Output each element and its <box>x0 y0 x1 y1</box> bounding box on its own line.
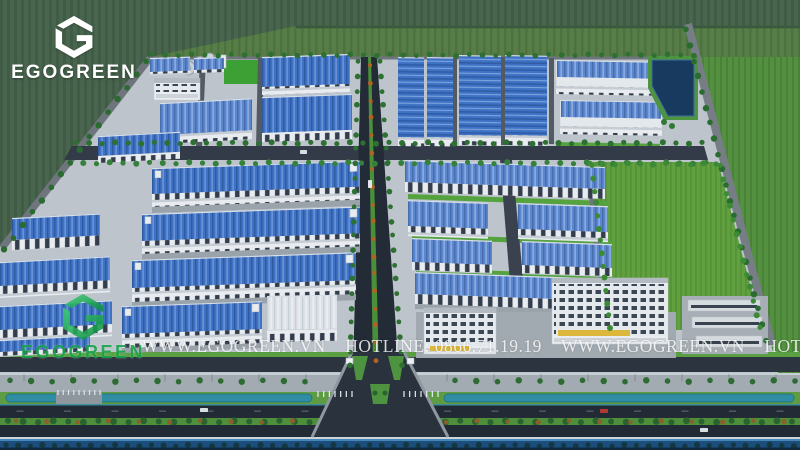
street-lamps <box>493 375 494 382</box>
tree-icon <box>767 442 773 448</box>
tree-icon <box>717 163 722 168</box>
tree-icon <box>86 140 92 146</box>
tree-icon <box>349 306 355 312</box>
tree-icon <box>270 443 275 448</box>
tree-icon <box>569 141 574 146</box>
tree-icon <box>603 288 608 293</box>
tree-icon <box>625 160 631 166</box>
tree-icon <box>3 442 8 447</box>
tree-icon <box>691 53 697 59</box>
tree-icon <box>258 442 264 448</box>
tree-icon <box>39 197 45 203</box>
factory-lr-2b <box>518 203 608 242</box>
side-bridge-railing <box>73 390 74 395</box>
tree-icon <box>587 161 592 166</box>
tree-icon <box>374 53 380 59</box>
tree-icon <box>727 203 733 209</box>
tree-icon <box>77 147 83 153</box>
road-ur-3 <box>549 58 554 144</box>
tree-icon <box>253 161 258 166</box>
tree-icon <box>750 379 756 385</box>
tree-icon <box>416 443 421 448</box>
tree-icon <box>425 159 431 165</box>
factory-roof <box>518 203 608 232</box>
tree-icon <box>306 160 311 165</box>
tree-icon <box>537 378 543 384</box>
tree-icon <box>658 442 663 447</box>
tree-icon <box>593 200 599 206</box>
stair-tower <box>350 209 357 217</box>
street-lamps <box>258 375 259 382</box>
stair-tower <box>155 171 161 178</box>
tree-icon <box>307 419 313 425</box>
tree-icon <box>601 378 607 384</box>
factory-roof <box>408 200 488 229</box>
tree-icon <box>52 443 57 448</box>
tree-icon <box>105 109 111 115</box>
tree-icon <box>39 442 45 448</box>
tree-icon <box>242 52 248 58</box>
tree-icon <box>198 419 202 423</box>
tree-icon <box>222 442 227 447</box>
tree-icon <box>106 418 111 423</box>
factory-ul-f <box>98 132 180 163</box>
tree-icon <box>754 312 760 318</box>
side-bridge-railing <box>78 390 79 395</box>
tree-icon <box>731 442 736 447</box>
lane-dashes <box>729 411 736 412</box>
factory-roof <box>267 295 337 330</box>
tree-icon <box>292 161 298 167</box>
tree-icon <box>295 141 301 147</box>
tree-icon <box>638 52 644 58</box>
side-bridge-railing <box>99 390 100 395</box>
tree-icon <box>634 140 640 146</box>
lane-dashes <box>64 411 71 412</box>
tree-icon <box>352 189 358 195</box>
bridge-railing-right <box>415 391 416 397</box>
street-lamps <box>164 375 165 382</box>
utility-shed-2 <box>692 317 762 328</box>
tree-icon <box>200 160 205 165</box>
egogreen-logo-icon <box>51 14 97 60</box>
tree-icon <box>660 139 666 145</box>
tree-icon <box>112 379 118 385</box>
tree-icon <box>476 442 482 448</box>
side-bridge-railing <box>89 390 90 395</box>
tree-icon <box>478 160 484 166</box>
factory-roof <box>160 98 252 135</box>
tree-icon <box>239 160 245 166</box>
tree-icon <box>213 161 219 167</box>
tree-icon <box>371 219 376 224</box>
tree-icon <box>178 141 183 146</box>
lane-dashes <box>444 411 451 412</box>
canal-water-left <box>6 394 312 402</box>
tree-icon <box>386 176 391 181</box>
tree-icon <box>573 53 578 58</box>
tree-icon <box>544 160 549 165</box>
tree-icon <box>353 176 358 181</box>
tree-icon <box>792 378 798 384</box>
tree-icon <box>378 74 384 80</box>
tree-icon <box>690 419 694 423</box>
tree-icon <box>226 160 231 165</box>
tree-icon <box>453 53 459 59</box>
tree-icon <box>173 161 178 166</box>
tree-icon <box>400 52 406 58</box>
tree-icon <box>373 322 378 327</box>
tree-icon <box>504 159 510 165</box>
tree-icon <box>28 378 34 384</box>
tree-icon <box>147 160 152 165</box>
tree-icon <box>176 379 182 385</box>
tree-icon <box>347 139 353 145</box>
street-lamps <box>23 375 24 382</box>
tree-icon <box>389 219 395 225</box>
tree-icon <box>621 442 627 448</box>
tree-icon <box>518 419 524 425</box>
tree-icon <box>308 140 313 145</box>
tree-icon <box>399 363 405 369</box>
tree-icon <box>80 419 87 426</box>
tree-icon <box>493 53 498 58</box>
tree-icon <box>386 140 391 145</box>
bridge-railing-left <box>317 391 318 397</box>
tree-icon <box>599 53 604 58</box>
tree-icon <box>451 161 457 167</box>
tree-icon <box>728 378 734 384</box>
tree-icon <box>369 151 374 156</box>
factory-lc-2 <box>142 206 360 260</box>
tree-icon <box>11 235 17 241</box>
tree-icon <box>347 52 353 58</box>
tree-icon <box>598 237 603 242</box>
tree-icon <box>384 146 389 151</box>
tree-icon <box>513 442 518 447</box>
tree-icon <box>5 418 11 424</box>
tree-icon <box>607 325 613 331</box>
bridge-railing-right <box>409 391 410 397</box>
panel-roof-2 <box>561 101 661 119</box>
tree-icon <box>360 140 365 145</box>
tree-icon <box>65 419 71 425</box>
tree-icon <box>543 140 548 145</box>
tree-icon <box>86 134 92 140</box>
tree-icon <box>162 52 168 58</box>
tree-icon <box>380 102 386 108</box>
tree-icon <box>695 73 701 79</box>
tree-icon <box>167 420 172 425</box>
stair-tower <box>252 304 259 312</box>
car-white <box>300 150 307 154</box>
panel-roof-1 <box>557 61 657 79</box>
tree-icon <box>14 419 18 423</box>
tree-icon <box>751 419 755 423</box>
tree-icon <box>230 140 235 145</box>
tree-icon <box>91 378 97 384</box>
tree-icon <box>353 146 358 151</box>
tree-icon <box>80 160 86 166</box>
tree-icon <box>590 175 596 181</box>
tree-icon <box>266 159 272 165</box>
tree-icon <box>686 379 692 385</box>
tree-icon <box>50 417 57 424</box>
tree-icon <box>652 53 657 58</box>
tree-icon <box>491 141 496 146</box>
street-lamps <box>211 375 212 382</box>
tree <box>669 123 675 129</box>
tree-icon <box>403 442 409 448</box>
tree-icon <box>353 161 359 167</box>
factory-ur-d <box>505 55 547 146</box>
office-roofline <box>552 278 668 283</box>
tree-icon <box>319 160 325 166</box>
watermark-wordmark: EGOGREEN <box>18 342 148 363</box>
bridge-railing-right <box>432 391 433 397</box>
tree-icon <box>95 418 101 424</box>
factory-lr-2a <box>408 200 488 239</box>
tree-icon <box>359 160 364 165</box>
tree-icon <box>150 52 155 57</box>
tree-icon <box>613 162 618 167</box>
tree-icon <box>597 419 602 424</box>
factory-ul-a <box>150 57 190 76</box>
tree-icon <box>699 140 704 145</box>
tree-icon <box>276 418 282 424</box>
tree-icon <box>373 307 377 311</box>
tree-icon <box>294 442 299 447</box>
factory-lr-3b <box>522 241 612 277</box>
tree-icon <box>723 182 729 188</box>
tree-icon <box>665 378 671 384</box>
lawn-ul <box>224 60 262 84</box>
tree-icon <box>529 141 535 147</box>
tree-icon <box>239 379 245 385</box>
tree-icon <box>488 443 493 448</box>
tree-icon <box>650 162 656 168</box>
side-bridge-railing <box>84 390 85 395</box>
tree-icon <box>35 419 41 425</box>
tree-icon <box>663 161 668 166</box>
tree-icon <box>487 419 493 425</box>
tree-icon <box>715 152 721 158</box>
factory-ul-d <box>262 94 352 142</box>
road-ur-3 <box>549 58 554 144</box>
tree-icon <box>516 377 522 383</box>
tree-icon <box>67 160 73 166</box>
tree-icon <box>638 418 644 424</box>
tree-icon <box>412 161 417 166</box>
tree-icon <box>582 139 588 145</box>
brand-wordmark: EGOGREEN <box>10 62 138 84</box>
stair-tower <box>145 217 151 224</box>
entrance-tree <box>373 391 378 396</box>
tree-icon <box>215 53 221 59</box>
tree-icon <box>282 53 287 58</box>
tree-icon <box>473 378 479 384</box>
tree-icon <box>713 419 720 426</box>
tree-icon <box>451 141 457 147</box>
tree-icon <box>683 27 689 33</box>
tree-icon <box>743 418 750 425</box>
tree-icon <box>734 231 740 237</box>
tree-icon <box>659 418 664 423</box>
factory-roof <box>505 55 547 136</box>
panel-roof-2 <box>561 101 661 119</box>
tree-icon <box>533 53 539 59</box>
tree-icon <box>354 102 360 108</box>
tree-icon <box>558 379 564 385</box>
office-ground-floor <box>156 94 198 98</box>
tree-icon <box>694 442 700 448</box>
tree-icon <box>668 419 674 425</box>
tree-icon <box>457 418 463 424</box>
tree-icon <box>720 420 725 425</box>
tree-icon <box>612 53 618 59</box>
tree-icon <box>628 420 632 424</box>
tree-icon <box>467 52 472 57</box>
stair-tower <box>346 255 353 263</box>
tree-icon <box>282 140 287 145</box>
tree-icon <box>393 276 399 282</box>
tree-icon <box>700 160 706 166</box>
street-lamps <box>587 375 588 382</box>
tree-icon <box>369 115 374 120</box>
tree-icon <box>414 53 419 58</box>
tree-icon <box>114 96 120 102</box>
tree-icon <box>503 139 509 145</box>
bridge-railing-right <box>426 391 427 397</box>
tree-icon <box>757 325 762 330</box>
tree-icon <box>20 418 27 425</box>
tree-icon <box>720 177 726 183</box>
tree-icon <box>228 419 233 424</box>
tree-icon <box>392 263 397 268</box>
side-bridge-railing <box>63 390 64 395</box>
tree-icon <box>133 161 139 167</box>
lane-dashes <box>112 411 119 412</box>
tree-icon <box>578 419 584 425</box>
tree-icon <box>608 141 614 147</box>
tree-icon <box>202 53 207 58</box>
tree-icon <box>58 171 64 177</box>
tree-icon <box>368 81 373 86</box>
panel-roof-1 <box>557 61 657 79</box>
tree-icon <box>7 378 13 384</box>
tree-icon <box>678 53 683 58</box>
tree-icon <box>779 443 784 448</box>
tree-icon <box>243 140 249 146</box>
tree-icon <box>372 288 377 293</box>
tree-icon <box>382 132 388 138</box>
tree-icon <box>49 185 55 191</box>
tree-icon <box>491 161 496 166</box>
tree-icon <box>140 417 147 424</box>
tree-icon <box>1 246 7 252</box>
tree-icon <box>388 52 393 57</box>
tree-icon <box>604 301 610 307</box>
side-bridge-railing <box>57 390 58 395</box>
tree-icon <box>699 89 705 95</box>
tree-icon <box>70 377 76 383</box>
tree-icon <box>370 167 374 171</box>
tree-icon <box>49 379 55 385</box>
tree-icon <box>548 418 554 424</box>
tree-icon <box>781 419 786 424</box>
car-white <box>700 428 708 432</box>
tree-icon <box>137 419 141 423</box>
tree-icon <box>216 141 222 147</box>
tree-icon <box>372 271 376 275</box>
tree-icon <box>774 417 781 424</box>
tree-icon <box>332 161 337 166</box>
tree-icon <box>197 443 202 448</box>
tree-icon <box>699 419 705 425</box>
tree-icon <box>382 118 387 123</box>
band-water-hi <box>0 439 800 441</box>
tree-icon <box>190 139 196 145</box>
tree-icon <box>351 233 356 238</box>
tree-icon <box>707 120 713 126</box>
tree-icon <box>160 160 166 166</box>
tree-icon <box>634 443 639 448</box>
tree-icon <box>380 89 385 94</box>
bridge-railing-left <box>334 391 335 397</box>
factory-roof <box>398 57 424 137</box>
tree-icon <box>599 250 605 256</box>
tree-icon <box>216 419 222 425</box>
car-red <box>600 409 608 413</box>
side-bridge-railing <box>68 390 69 395</box>
factory-roof <box>412 238 492 265</box>
bridge-railing-left <box>351 391 352 397</box>
office-ul <box>154 78 200 100</box>
tree-icon <box>600 161 606 167</box>
tree-icon <box>557 160 563 166</box>
lane-dashes <box>777 411 784 412</box>
tree-icon <box>465 140 470 145</box>
shed-windows <box>695 322 759 325</box>
factory-ll-1 <box>12 213 100 251</box>
lane-dashes <box>492 411 499 412</box>
factory-roof <box>522 241 612 268</box>
tree-icon <box>73 140 78 145</box>
tree-icon <box>350 247 356 253</box>
tree-icon <box>369 133 373 137</box>
tree-icon <box>626 52 631 57</box>
tree-icon <box>204 140 209 145</box>
tree-icon <box>561 443 566 448</box>
tree-icon <box>356 59 361 64</box>
tree-icon <box>372 161 378 167</box>
tree-icon <box>388 204 393 209</box>
tree-icon <box>295 53 301 59</box>
tree-icon <box>350 263 355 268</box>
tree-icon <box>531 161 537 167</box>
tree-icon <box>444 420 448 424</box>
tree-icon <box>596 226 602 232</box>
bridge-railing-right <box>420 391 421 397</box>
factory-roof <box>262 54 350 87</box>
tree-icon <box>724 191 729 196</box>
tree-icon <box>480 52 486 58</box>
tree-icon <box>164 140 170 146</box>
tree-icon <box>606 312 611 317</box>
tree-icon <box>352 204 357 209</box>
tree-icon <box>95 122 101 128</box>
tree-icon <box>196 377 202 383</box>
